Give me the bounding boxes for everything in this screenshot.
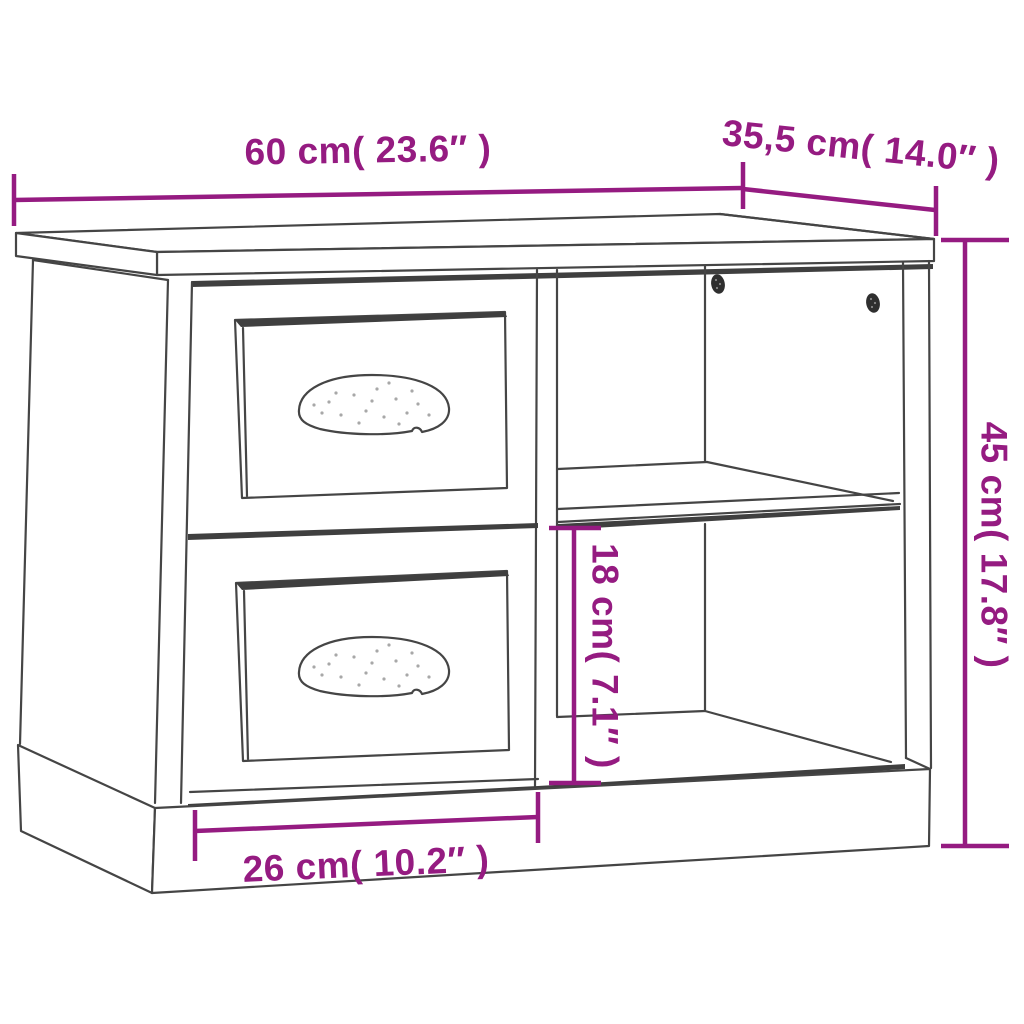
depth-dimension-label: 35,5 cm( 14.0″ ) xyxy=(720,112,1001,182)
product-dimension-diagram: 60 cm( 23.6″ ) 35,5 cm( 14.0″ ) 45 cm( 1… xyxy=(0,0,1024,1024)
top-panel xyxy=(16,214,934,275)
dimension-shelf-inner-height: 18 cm( 7.1″ ) xyxy=(549,528,626,783)
screw-cap-icon xyxy=(710,273,727,295)
dimension-width: 60 cm( 23.6″ ) xyxy=(14,127,743,226)
shelf-inner-height-dimension-label: 18 cm( 7.1″ ) xyxy=(585,543,626,769)
top-drawer xyxy=(235,312,507,498)
width-dimension-label: 60 cm( 23.6″ ) xyxy=(244,127,492,172)
bottom-drawer xyxy=(236,571,509,761)
drawer-gap-shadow xyxy=(188,523,538,540)
left-side-panel xyxy=(20,260,192,803)
dimension-height: 45 cm( 17.8″ ) xyxy=(941,240,1015,846)
screw-cap-icon xyxy=(865,292,882,314)
shell-handle-icon xyxy=(299,375,449,434)
height-dimension-label: 45 cm( 17.8″ ) xyxy=(974,422,1015,669)
nightstand-drawing xyxy=(16,214,934,893)
nightstand-diagram-canvas: 60 cm( 23.6″ ) 35,5 cm( 14.0″ ) 45 cm( 1… xyxy=(0,0,1024,1024)
dimension-depth: 35,5 cm( 14.0″ ) xyxy=(720,112,1001,236)
shell-handle-icon xyxy=(299,637,449,696)
middle-shelf xyxy=(558,462,900,530)
right-side-panel xyxy=(903,261,931,769)
